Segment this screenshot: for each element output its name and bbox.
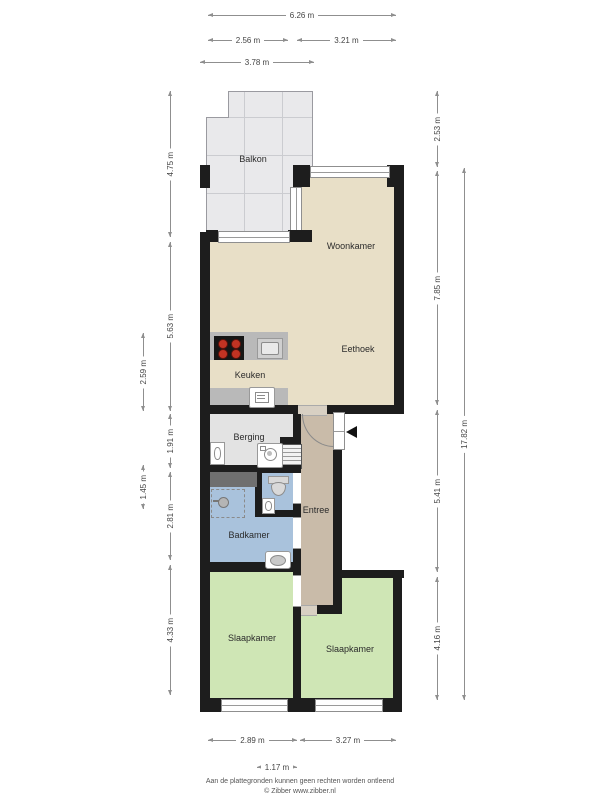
room-label-woonkamer: Woonkamer (327, 241, 375, 251)
dim-left-woonkamer: 5.63 m (164, 242, 176, 411)
doorway-threshold (301, 605, 317, 616)
wall (293, 414, 301, 437)
room-label-badkamer: Badkamer (228, 530, 269, 540)
dim-label: 2.81 m (166, 500, 175, 532)
dim-top-total: 6.26 m (208, 9, 396, 21)
dim-right-total: 17.82 m (458, 168, 470, 700)
dim-top-left: 2.56 m (208, 34, 288, 46)
kitchen-sink-icon (257, 338, 283, 359)
dim-label: 2.53 m (433, 113, 442, 145)
room-slaapkamer-rechts (342, 578, 393, 700)
wall (288, 230, 312, 242)
wall (293, 614, 301, 698)
dim-label: 6.26 m (286, 11, 318, 20)
dim-left-wc: 1.45 m (137, 465, 149, 509)
dim-bottom-right: 3.27 m (300, 734, 396, 746)
dim-right-slaapkamer: 4.16 m (431, 577, 443, 700)
bathroom-cabinet (210, 472, 257, 487)
dim-bottom-left: 2.89 m (208, 734, 297, 746)
wall (333, 447, 342, 614)
dim-left-badkamer: 2.81 m (164, 472, 176, 560)
dim-label: 1.45 m (139, 471, 148, 503)
cooktop-icon (214, 336, 244, 360)
balcony-railing (228, 91, 313, 92)
dim-label: 3.78 m (241, 58, 273, 67)
dim-label: 4.75 m (166, 148, 175, 180)
dim-label: 7.85 m (433, 272, 442, 304)
wall (394, 165, 404, 413)
wall (280, 437, 301, 444)
dim-label: 3.27 m (332, 736, 364, 745)
room-label-keuken: Keuken (235, 370, 266, 380)
room-label-balkon: Balkon (239, 154, 267, 164)
dim-label: 17.82 m (460, 416, 469, 453)
wall (200, 165, 210, 188)
balcony-railing (228, 91, 229, 118)
badkamer-door-opening (293, 517, 301, 549)
room-label-slaapkamer-rechts: Slaapkamer (326, 644, 374, 654)
bathroom-sink-icon (265, 551, 291, 569)
dim-label: 2.56 m (232, 36, 264, 45)
wall (393, 570, 402, 712)
window (221, 699, 288, 712)
dim-right-entree: 5.41 m (431, 410, 443, 572)
window (290, 187, 302, 234)
room-label-slaapkamer-links: Slaapkamer (228, 633, 276, 643)
dim-label: 1.17 m (261, 763, 293, 772)
room-label-eethoek: Eethoek (341, 344, 374, 354)
dim-right-woonkamer: 7.85 m (431, 171, 443, 405)
window (315, 699, 383, 712)
room-woonkamer (300, 174, 395, 237)
room-label-berging: Berging (233, 432, 264, 442)
dim-top-right: 3.21 m (297, 34, 396, 46)
dim-label: 2.89 m (236, 736, 268, 745)
window (310, 166, 390, 178)
dim-right-balkon: 2.53 m (431, 91, 443, 167)
boiler-icon (210, 442, 225, 465)
dim-top-balkon: 3.78 m (200, 56, 314, 68)
wc-sink-icon (262, 498, 275, 514)
footer-copyright: © Zibber www.zibber.nl (0, 788, 600, 795)
front-door (333, 412, 345, 450)
floor-plan: 6.26 m 2.56 m 3.21 m 3.78 m 2.59 m 1.45 … (0, 0, 600, 800)
room-label-entree: Entree (303, 505, 330, 515)
dim-label: 4.16 m (433, 622, 442, 654)
washing-machine-icon (257, 443, 283, 468)
wc-door-opening (293, 472, 301, 504)
dim-label: 4.33 m (166, 614, 175, 646)
footer-disclaimer: Aan de plattegronden kunnen geen rechten… (0, 778, 600, 785)
dim-label: 2.59 m (139, 356, 148, 388)
dim-left-slaapkamer: 4.33 m (164, 565, 176, 695)
dim-label: 1.91 m (166, 425, 175, 457)
oven-icon (249, 387, 275, 408)
dim-label: 3.21 m (330, 36, 362, 45)
dim-label: 5.41 m (433, 475, 442, 507)
dim-bottom-small: 1.17 m (257, 761, 297, 773)
dim-label: 5.63 m (166, 310, 175, 342)
balcony-railing (206, 117, 229, 118)
dim-left-berging: 1.91 m (164, 414, 176, 468)
wall (206, 230, 218, 242)
wall (293, 165, 310, 187)
dim-left-balkon: 4.75 m (164, 91, 176, 237)
shower-icon (211, 489, 245, 518)
entrance-arrow-icon (346, 426, 357, 438)
balcony-door-window (218, 231, 290, 243)
slaapkamer-door-opening (293, 575, 301, 607)
dim-left-keuken: 2.59 m (137, 333, 149, 411)
